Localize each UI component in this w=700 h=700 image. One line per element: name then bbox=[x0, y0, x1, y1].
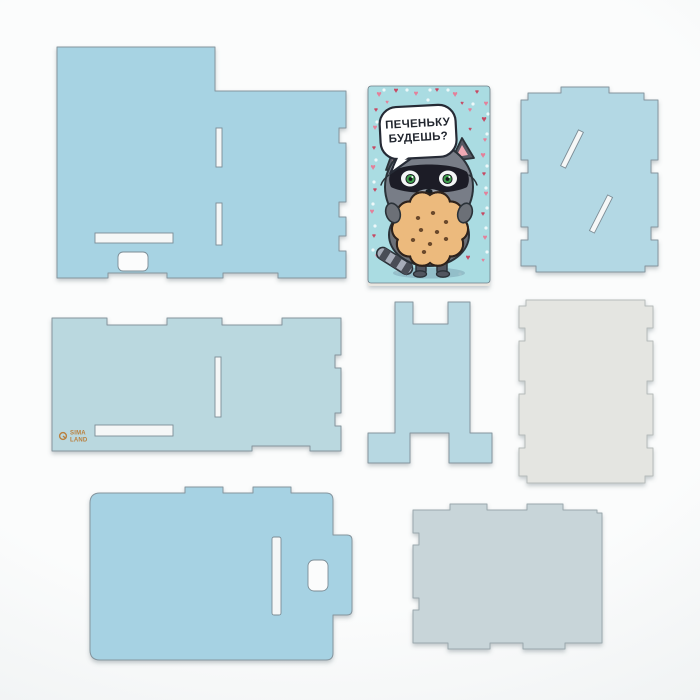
base-panel-outline bbox=[413, 504, 602, 649]
dot bbox=[485, 164, 488, 167]
piece-white-back-panel bbox=[519, 300, 653, 483]
heart-icon: ♥ bbox=[385, 100, 389, 106]
logo-line2: LAND bbox=[70, 438, 88, 444]
right-side-panel-outline bbox=[521, 87, 658, 272]
dot bbox=[372, 180, 375, 183]
product-photo: SIMA LAND ♥♥♥♥♥♥♥♥♥♥♥♥♥♥♥♥♥♥♥♥♥♥♥♥♥♥♥♥ bbox=[0, 0, 700, 700]
heart-icon: ♥ bbox=[435, 87, 439, 94]
heart-icon: ♥ bbox=[376, 89, 381, 99]
dot bbox=[405, 88, 408, 91]
dot bbox=[484, 226, 487, 229]
piece-base-panel bbox=[413, 504, 602, 649]
heart-icon: ♥ bbox=[481, 258, 485, 264]
dot bbox=[485, 206, 488, 209]
heart-icon: ♥ bbox=[481, 211, 485, 218]
heart-icon: ♥ bbox=[484, 99, 489, 108]
logo-line1: SIMA bbox=[70, 431, 86, 437]
pieces-canvas: SIMA LAND ♥♥♥♥♥♥♥♥♥♥♥♥♥♥♥♥♥♥♥♥♥♥♥♥♥♥♥♥ bbox=[0, 0, 700, 700]
heart-icon: ♥ bbox=[372, 145, 376, 152]
heart-icon: ♥ bbox=[468, 127, 472, 133]
heart-icon: ♥ bbox=[372, 233, 376, 240]
piece-stand-bracket bbox=[368, 302, 492, 463]
dot bbox=[382, 88, 385, 91]
heart-icon: ♥ bbox=[468, 107, 472, 114]
heart-icon: ♥ bbox=[483, 137, 487, 144]
dot bbox=[486, 112, 489, 115]
dot bbox=[471, 102, 474, 105]
heart-icon: ♥ bbox=[481, 114, 486, 124]
piece-greeting-card: ♥♥♥♥♥♥♥♥♥♥♥♥♥♥♥♥♥♥♥♥♥♥♥♥♥♥♥♥ bbox=[368, 86, 490, 286]
heart-icon: ♥ bbox=[460, 101, 464, 107]
heart-icon: ♥ bbox=[483, 233, 488, 242]
heart-icon: ♥ bbox=[480, 150, 485, 160]
heart-icon: ♥ bbox=[370, 207, 375, 216]
heart-icon: ♥ bbox=[482, 171, 486, 178]
card-wood-edge bbox=[368, 283, 490, 286]
piece-right-side-panel bbox=[521, 87, 658, 272]
dot bbox=[485, 250, 488, 253]
piece-lid-panel bbox=[90, 487, 352, 660]
cookie-icon bbox=[392, 192, 468, 266]
heart-icon: ♥ bbox=[414, 89, 419, 98]
heart-icon: ♥ bbox=[452, 89, 457, 99]
heart-icon: ♥ bbox=[484, 189, 489, 198]
dot bbox=[428, 88, 431, 91]
dot bbox=[485, 132, 488, 135]
dot bbox=[371, 248, 374, 251]
raccoon-mask bbox=[389, 165, 469, 194]
dot bbox=[371, 202, 374, 205]
stand-bracket-outline bbox=[368, 302, 492, 463]
heart-icon: ♥ bbox=[466, 253, 471, 262]
dot bbox=[373, 224, 376, 227]
dot bbox=[426, 98, 429, 101]
white-back-panel-outline bbox=[519, 300, 653, 483]
dot bbox=[375, 120, 378, 123]
piece-back-panel bbox=[57, 47, 346, 278]
heart-icon: ♥ bbox=[373, 187, 377, 194]
dot bbox=[374, 158, 377, 161]
dot bbox=[484, 186, 487, 189]
dot bbox=[446, 88, 449, 91]
heart-icon: ♥ bbox=[374, 107, 378, 114]
heart-icon: ♥ bbox=[370, 162, 375, 172]
heart-icon: ♥ bbox=[475, 89, 479, 96]
piece-shelf-panel: SIMA LAND bbox=[52, 318, 341, 451]
heart-icon: ♥ bbox=[373, 123, 378, 132]
heart-icon: ♥ bbox=[394, 86, 399, 95]
